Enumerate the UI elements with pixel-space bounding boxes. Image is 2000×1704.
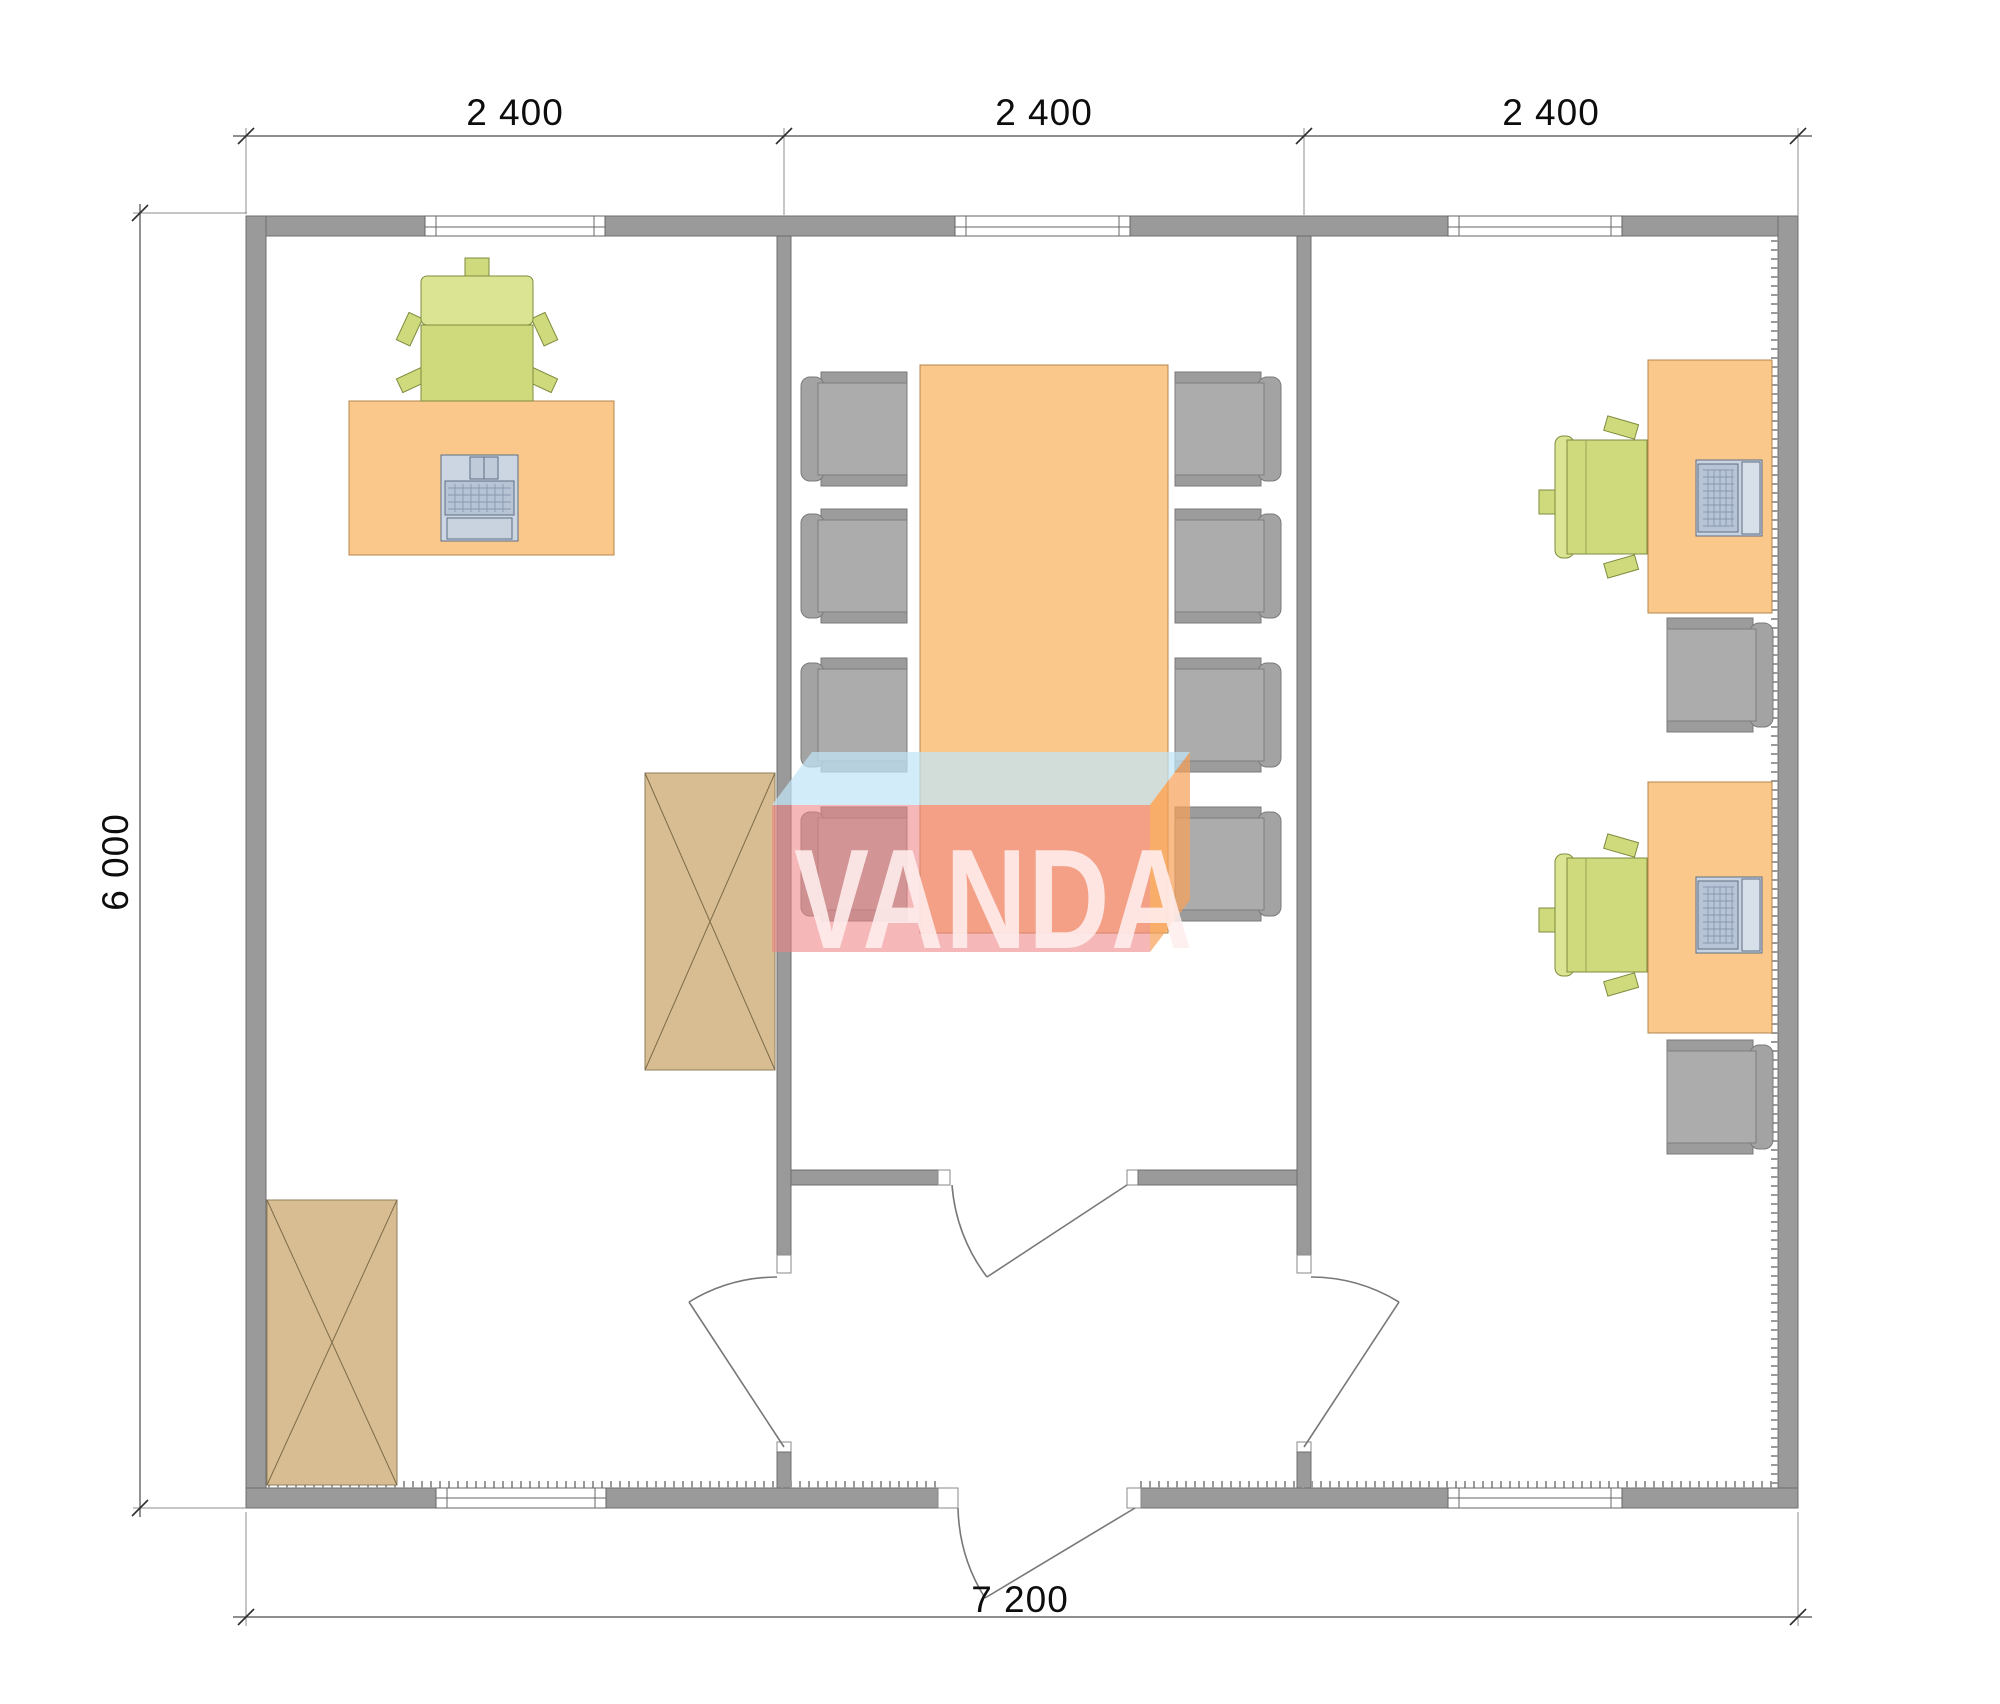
door-office-right (1304, 1277, 1399, 1447)
office-left-furniture (267, 258, 775, 1485)
dimension-label-top-3: 2 400 (1502, 92, 1600, 133)
partition-right (1297, 236, 1311, 1255)
office-right-furniture (1539, 360, 1773, 1154)
dimension-label-bottom: 7 200 (971, 1579, 1069, 1620)
wall-left (246, 216, 266, 1508)
watermark-top-face (772, 752, 1190, 805)
conference-chair (1175, 658, 1281, 772)
conference-chair (801, 509, 907, 623)
window-bottom-right (1448, 1488, 1622, 1508)
door-jamb (1127, 1488, 1141, 1508)
spare-chair-gray (1667, 618, 1773, 732)
window-top-right (1448, 216, 1622, 236)
conference-chair (1175, 509, 1281, 623)
wardrobe-cabinet (645, 773, 775, 1070)
watermark-text: VANDA (794, 820, 1194, 979)
desktop-computer (441, 455, 518, 541)
window-bottom-left (436, 1488, 606, 1508)
door-jamb (938, 1488, 958, 1508)
desk-chair-green (1539, 416, 1647, 578)
partition-left (777, 236, 791, 1255)
door-office-left (689, 1277, 784, 1447)
wall-right (1778, 216, 1798, 1508)
window-top-middle (955, 216, 1130, 236)
desk-chair-green (396, 258, 557, 401)
laptop (1696, 460, 1762, 536)
vanda-watermark: VANDA (772, 752, 1194, 979)
desk-chair-green (1539, 834, 1647, 996)
vestibule-wall-right (1138, 1170, 1297, 1185)
conference-chair (801, 372, 907, 486)
laptop (1696, 877, 1762, 953)
vestibule-wall-left (791, 1170, 938, 1185)
door-jamb (938, 1170, 950, 1185)
dimension-label-top-2: 2 400 (995, 92, 1093, 133)
chair-head-tab (465, 258, 489, 278)
floor-plan-page: 2 400 2 400 2 400 6 000 7 200 VANDA (0, 0, 2000, 1704)
door-jamb (1127, 1170, 1138, 1185)
window-top-left (425, 216, 605, 236)
door-jamb (777, 1255, 791, 1273)
dimension-label-left: 6 000 (95, 813, 136, 911)
door-jamb (1297, 1255, 1311, 1273)
conference-chair (1175, 372, 1281, 486)
spare-chair-gray (1667, 1040, 1773, 1154)
partition-left-stub (777, 1452, 791, 1488)
entrance-opening (938, 1488, 1141, 1508)
floor-plan-canvas: 2 400 2 400 2 400 6 000 7 200 VANDA (0, 0, 2000, 1704)
wardrobe-cabinet (267, 1200, 397, 1485)
doors (689, 1185, 1399, 1598)
door-meeting-room (952, 1185, 1127, 1277)
dimension-label-top-1: 2 400 (466, 92, 564, 133)
